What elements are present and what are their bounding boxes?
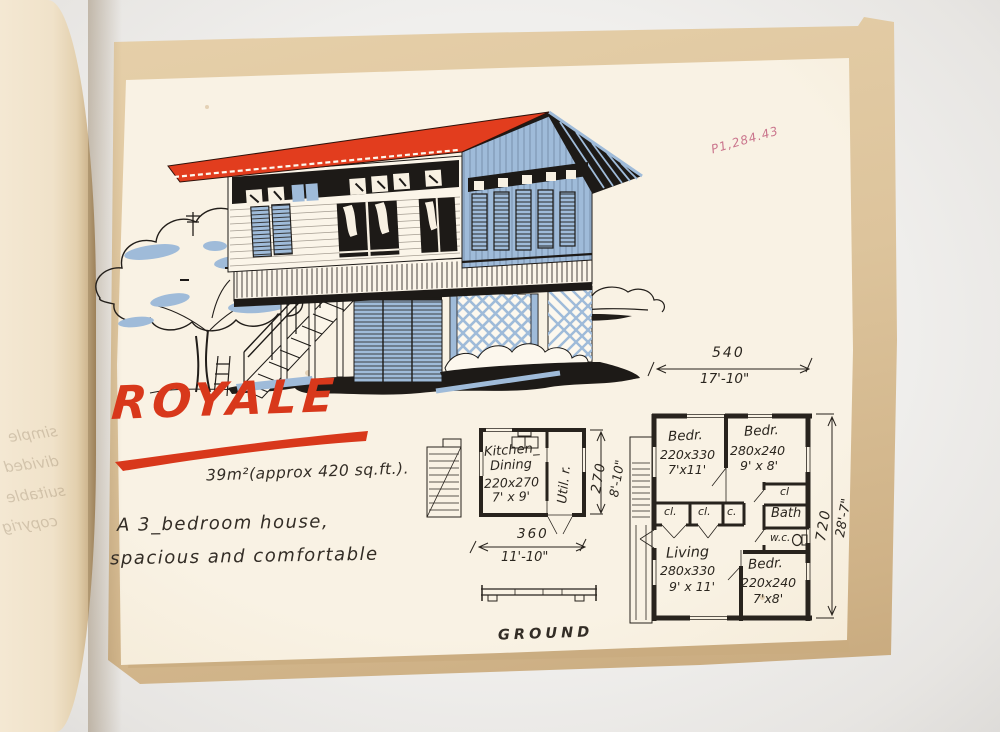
book-photo: simple divided suitable copyrig <box>0 0 1000 732</box>
room-size-cm: 220x330 <box>660 449 715 462</box>
design-title: ROYALE <box>110 372 340 426</box>
room-label-wc: w.c. <box>770 533 790 544</box>
page-artwork <box>0 0 1000 732</box>
dim-width-ft: 11'-10" <box>501 551 548 564</box>
dim-width-ft: 17'-10" <box>700 373 749 387</box>
room-label-utility: Util. r. <box>556 465 573 505</box>
room-label-bedroom3: Bedr. <box>748 557 783 572</box>
louver-doors <box>354 296 442 382</box>
room-label-bedroom2: Bedr. <box>744 424 779 439</box>
house-illustration <box>168 112 656 398</box>
room-size-ft: 9' x 8' <box>740 460 778 473</box>
room-size-cm: 280x240 <box>730 445 785 458</box>
closet-label: cl. <box>698 506 711 517</box>
closet-label: c. <box>727 506 737 517</box>
description-line1: A 3_bedroom house, <box>117 511 329 536</box>
dim-width-cm: 540 <box>712 346 745 360</box>
closet-label: cl <box>780 486 789 497</box>
plan-level-label: GROUND <box>498 624 594 643</box>
upper-plan-drawing <box>630 358 836 623</box>
room-label-living: Living <box>666 545 710 561</box>
room-size-cm: 280x330 <box>660 565 715 578</box>
gable-shutters <box>472 190 575 250</box>
room-size-ft: 7' x 9' <box>492 490 531 504</box>
room-size-cm: 220x240 <box>741 577 796 590</box>
closet-label: cl. <box>664 506 677 517</box>
front-window-right <box>419 197 458 253</box>
room-size-ft: 9' x 11' <box>669 581 715 594</box>
dim-width-cm: 360 <box>517 528 549 542</box>
room-size-ft: 7'x8' <box>753 593 783 606</box>
front-windows-center <box>337 200 400 257</box>
room-size-ft: 7'x11' <box>668 464 706 477</box>
room-label-bedroom1: Bedr. <box>668 429 703 444</box>
room-label-bath: Bath <box>771 507 801 520</box>
room-label-dining: Dining <box>490 458 533 473</box>
